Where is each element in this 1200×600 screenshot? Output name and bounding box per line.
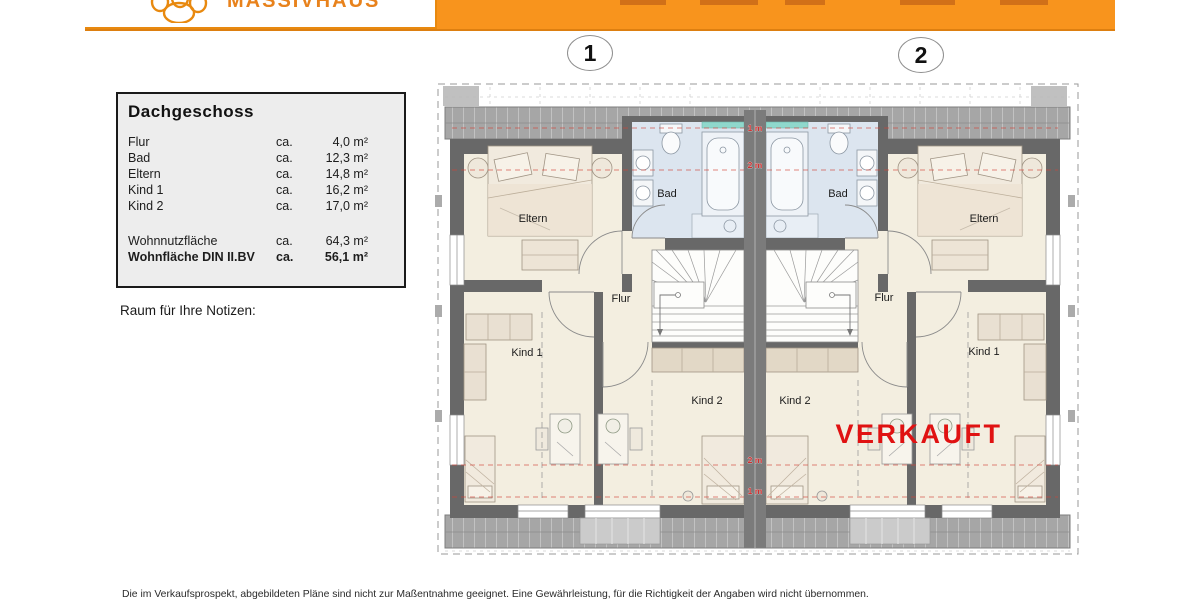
- header-cutoff-text-mark: [620, 0, 666, 5]
- approx: ca.: [276, 150, 316, 166]
- room-label-kind2-1: Kind 2: [691, 395, 722, 407]
- approx: ca.: [276, 249, 316, 265]
- room-label-bad-2: Bad: [828, 188, 848, 200]
- area-legend-panel: Dachgeschoss Flurca.4,0 m² Badca.12,3 m²…: [116, 92, 406, 288]
- total-name: Wohnfläche DIN II.BV: [128, 249, 276, 265]
- room-name: Kind 2: [128, 198, 276, 214]
- room-label-kind2-2: Kind 2: [779, 395, 810, 407]
- approx: ca.: [276, 166, 316, 182]
- room-label-flur-2: Flur: [875, 292, 894, 304]
- sold-stamp: VERKAUFT: [836, 419, 1003, 449]
- room-area: 14,8 m²: [316, 166, 390, 182]
- approx: ca.: [276, 134, 316, 150]
- floor-plan: 1 m 2 m 2 m 1 m Eltern Bad Flur Kind 1 K…: [430, 80, 1090, 560]
- legend-row: Elternca.14,8 m²: [128, 166, 390, 182]
- total-area: 56,1 m²: [316, 249, 390, 265]
- unit-marker-2: 2: [898, 37, 944, 73]
- paw-logo-icon: [140, 0, 220, 23]
- notes-label: Raum für Ihre Notizen:: [120, 303, 256, 318]
- room-label-bad-1: Bad: [657, 188, 677, 200]
- disclaimer-text: Die im Verkaufsprospekt, abgebildeten Pl…: [122, 589, 1082, 600]
- room-name: Eltern: [128, 166, 276, 182]
- room-label-flur-1: Flur: [612, 293, 631, 305]
- room-area: 12,3 m²: [316, 150, 390, 166]
- room-label-kind1-2: Kind 1: [968, 346, 999, 358]
- brand-wordmark: MASSIVHAUS: [227, 0, 380, 13]
- party-wall: [744, 110, 766, 548]
- room-name: Kind 1: [128, 182, 276, 198]
- room-area: 16,2 m²: [316, 182, 390, 198]
- header-bar: MASSIVHAUS: [85, 0, 1115, 31]
- unit-marker-2-label: 2: [915, 42, 928, 69]
- room-area: 17,0 m²: [316, 198, 390, 214]
- approx: ca.: [276, 198, 316, 214]
- header-cutoff-text-mark: [1000, 0, 1048, 5]
- legend-row: Kind 2ca.17,0 m²: [128, 198, 390, 214]
- room-area: 4,0 m²: [316, 134, 390, 150]
- header-cutoff-text-mark: [785, 0, 825, 5]
- logo-box: MASSIVHAUS: [85, 0, 437, 29]
- legend-row: Badca.12,3 m²: [128, 150, 390, 166]
- room-name: Flur: [128, 134, 276, 150]
- room-label-eltern-1: Eltern: [519, 213, 548, 225]
- dwelling-unit-geometry: [435, 86, 746, 544]
- legend-title: Dachgeschoss: [128, 102, 390, 122]
- staircase: [652, 250, 744, 342]
- unit-marker-1-label: 1: [584, 40, 597, 67]
- legend-row: Flurca.4,0 m²: [128, 134, 390, 150]
- approx: ca.: [276, 233, 316, 249]
- room-name: Bad: [128, 150, 276, 166]
- legend-row: Kind 1ca.16,2 m²: [128, 182, 390, 198]
- unit-marker-1: 1: [567, 35, 613, 71]
- legend-total-row: Wohnnutzflächeca.64,3 m²: [128, 233, 390, 249]
- height-mark: 2 m: [748, 160, 763, 170]
- height-mark: 2 m: [748, 455, 763, 465]
- approx: ca.: [276, 182, 316, 198]
- total-name: Wohnnutzfläche: [128, 233, 276, 249]
- floor-plan-drawing: 1 m 2 m 2 m 1 m Eltern Bad Flur Kind 1 K…: [430, 80, 1090, 560]
- height-mark: 1 m: [748, 123, 763, 133]
- room-label-kind1-1: Kind 1: [511, 347, 542, 359]
- header-cutoff-text-mark: [700, 0, 758, 5]
- total-area: 64,3 m²: [316, 233, 390, 249]
- legend-total-row: Wohnfläche DIN II.BVca.56,1 m²: [128, 249, 390, 265]
- room-label-eltern-2: Eltern: [970, 213, 999, 225]
- height-mark: 1 m: [748, 486, 763, 496]
- header-cutoff-text-mark: [900, 0, 955, 5]
